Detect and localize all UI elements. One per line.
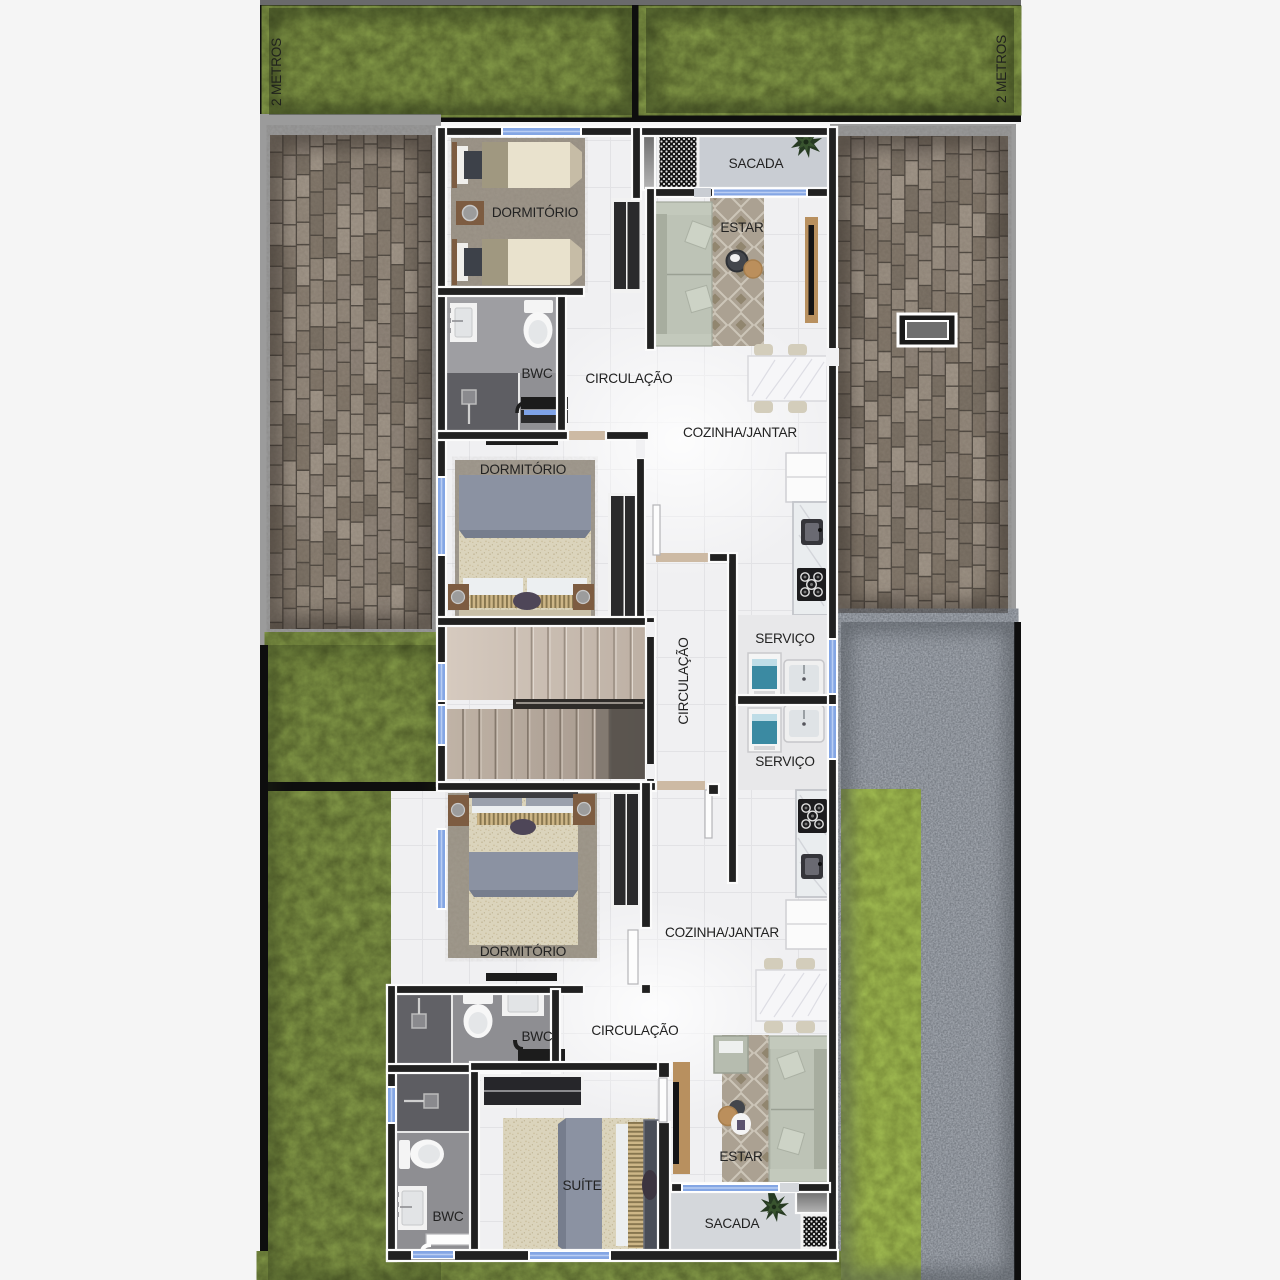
svg-text:DORMITÓRIO: DORMITÓRIO <box>480 462 566 477</box>
svg-text:SUÍTE: SUÍTE <box>562 1178 601 1193</box>
svg-text:CIRCULAÇÃO: CIRCULAÇÃO <box>591 1023 678 1038</box>
svg-text:SACADA: SACADA <box>729 156 785 171</box>
svg-text:CIRCULAÇÃO: CIRCULAÇÃO <box>585 371 672 386</box>
svg-text:SERVIÇO: SERVIÇO <box>755 754 815 769</box>
svg-text:ESTAR: ESTAR <box>719 1149 763 1164</box>
svg-text:COZINHA/JANTAR: COZINHA/JANTAR <box>665 925 779 940</box>
svg-text:ESTAR: ESTAR <box>720 220 764 235</box>
svg-text:COZINHA/JANTAR: COZINHA/JANTAR <box>683 425 797 440</box>
svg-text:BWC: BWC <box>521 366 552 381</box>
svg-text:BWC: BWC <box>432 1209 463 1224</box>
svg-text:BWC: BWC <box>521 1029 552 1044</box>
svg-text:DORMITÓRIO: DORMITÓRIO <box>492 205 578 220</box>
svg-text:SERVIÇO: SERVIÇO <box>755 631 815 646</box>
svg-text:DORMITÓRIO: DORMITÓRIO <box>480 944 566 959</box>
svg-text:CIRCULAÇÃO: CIRCULAÇÃO <box>676 637 691 724</box>
svg-text:SACADA: SACADA <box>705 1216 761 1231</box>
